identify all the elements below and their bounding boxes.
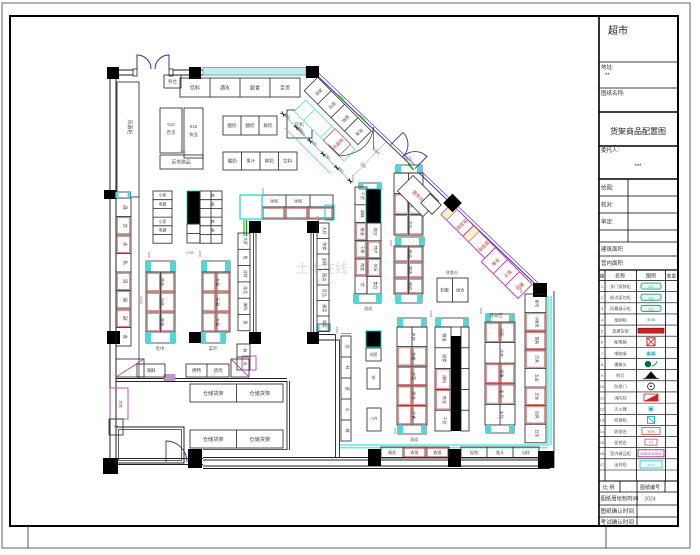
svg-text:超市: 超市 bbox=[608, 24, 628, 37]
svg-text:风幕展示柜: 风幕展示柜 bbox=[610, 305, 631, 312]
svg-text:名称: 名称 bbox=[615, 273, 625, 280]
svg-text:考试确认时间: 考试确认时间 bbox=[601, 518, 635, 526]
svg-text:百货赠品: 百货赠品 bbox=[171, 159, 190, 166]
svg-text:副食: 副食 bbox=[250, 84, 260, 91]
svg-text:百货: 百货 bbox=[167, 129, 176, 136]
svg-text:审定:: 审定: bbox=[601, 218, 614, 226]
svg-text:毛巾: 毛巾 bbox=[156, 345, 165, 352]
svg-text:图纸确认时间: 图纸确认时间 bbox=[601, 507, 635, 515]
svg-text:YY: YY bbox=[649, 441, 654, 445]
svg-text:▣: ▣ bbox=[648, 407, 654, 413]
svg-text:大虾: 大虾 bbox=[243, 237, 249, 245]
svg-text:厨具: 厨具 bbox=[535, 337, 540, 345]
svg-text:仓储货架: 仓储货架 bbox=[249, 435, 270, 443]
svg-text:2060: 2060 bbox=[316, 216, 320, 223]
svg-text:出样: 出样 bbox=[522, 449, 530, 455]
svg-text:冷冻: 冷冻 bbox=[498, 349, 505, 357]
svg-text:酸奶: 酸奶 bbox=[228, 122, 237, 129]
svg-text:糕点面包柜: 糕点面包柜 bbox=[610, 294, 631, 301]
svg-text:促销: 促销 bbox=[470, 449, 478, 455]
svg-text:称台: 称台 bbox=[168, 78, 177, 85]
svg-text:2780: 2780 bbox=[186, 251, 194, 255]
svg-text:称重台: 称重台 bbox=[446, 269, 458, 275]
svg-text:卫生: 卫生 bbox=[408, 221, 414, 229]
svg-text:调料: 调料 bbox=[442, 375, 448, 383]
svg-text:仓储货架: 仓储货架 bbox=[203, 435, 224, 443]
svg-text:烟: 烟 bbox=[122, 298, 129, 303]
svg-text:图纸周绘制时间: 图纸周绘制时间 bbox=[601, 495, 639, 503]
svg-text:12: 12 bbox=[600, 406, 605, 411]
svg-text:通道: 通道 bbox=[364, 305, 372, 311]
svg-text:冰柜: 冰柜 bbox=[270, 197, 278, 204]
svg-text:小家电: 小家电 bbox=[535, 316, 540, 328]
svg-text:2060: 2060 bbox=[519, 287, 523, 294]
svg-text:菜叶: 菜叶 bbox=[209, 345, 218, 352]
svg-text:收银: 收银 bbox=[411, 449, 419, 455]
svg-text:多门保鲜柜: 多门保鲜柜 bbox=[610, 283, 631, 290]
svg-text:比 例: 比 例 bbox=[603, 484, 614, 491]
svg-text:910: 910 bbox=[167, 122, 175, 127]
svg-text:小家: 小家 bbox=[159, 193, 167, 198]
svg-text:鲜: 鲜 bbox=[243, 349, 249, 353]
svg-text:co188.com: co188.com bbox=[309, 280, 336, 286]
svg-text:冷库: 冷库 bbox=[118, 400, 124, 408]
svg-text:射灯: 射灯 bbox=[616, 372, 625, 379]
svg-text:果汁: 果汁 bbox=[246, 158, 255, 165]
svg-text:熟食: 熟食 bbox=[322, 242, 328, 250]
svg-text:***: *** bbox=[634, 164, 642, 170]
svg-text:楼: 楼 bbox=[210, 220, 215, 224]
svg-text:鱼: 鱼 bbox=[243, 321, 249, 325]
svg-text:电器: 电器 bbox=[159, 227, 167, 232]
svg-text:组合: 组合 bbox=[456, 286, 465, 293]
svg-text:肉: 肉 bbox=[243, 362, 249, 366]
svg-text:小家: 小家 bbox=[159, 219, 167, 224]
svg-text:出样柜: 出样柜 bbox=[614, 461, 627, 468]
svg-text:海鲜: 海鲜 bbox=[147, 367, 156, 374]
svg-text:2060: 2060 bbox=[389, 240, 393, 247]
svg-text:2060: 2060 bbox=[351, 175, 355, 182]
svg-text:◻◻: ◻◻ bbox=[648, 307, 654, 311]
svg-text:酒水: 酒水 bbox=[220, 84, 230, 91]
svg-text:仓储货架: 仓储货架 bbox=[249, 389, 270, 397]
svg-text:小件: 小件 bbox=[370, 416, 378, 421]
svg-text:海鲜: 海鲜 bbox=[243, 302, 249, 310]
svg-text:烟酒柜: 烟酒柜 bbox=[614, 316, 627, 323]
svg-text:熟食: 熟食 bbox=[410, 352, 417, 361]
svg-text:通道: 通道 bbox=[410, 436, 418, 442]
svg-text:酸奶: 酸奶 bbox=[246, 122, 255, 129]
svg-text:日化: 日化 bbox=[159, 298, 166, 307]
svg-text:凉菜: 凉菜 bbox=[322, 320, 328, 328]
svg-text:洗化: 洗化 bbox=[159, 278, 166, 287]
svg-text:干果: 干果 bbox=[360, 245, 366, 253]
svg-text:百货: 百货 bbox=[280, 84, 290, 91]
svg-text:名吃: 名吃 bbox=[410, 333, 417, 342]
svg-text:≋≋: ≋≋ bbox=[647, 318, 655, 324]
svg-text:货: 货 bbox=[360, 283, 366, 287]
svg-text:冰柜: 冰柜 bbox=[294, 197, 302, 204]
svg-text:◻◻: ◻◻ bbox=[648, 285, 654, 289]
svg-text:校对:: 校对: bbox=[601, 201, 614, 209]
svg-text:17: 17 bbox=[600, 462, 605, 467]
svg-text:调味: 调味 bbox=[360, 210, 366, 218]
svg-text:地址:: 地址: bbox=[601, 63, 614, 71]
svg-text:酸奶: 酸奶 bbox=[228, 158, 237, 165]
svg-text:**: ** bbox=[605, 73, 610, 79]
svg-text:副食: 副食 bbox=[442, 354, 448, 362]
svg-text:室内精品柜: 室内精品柜 bbox=[610, 450, 631, 457]
svg-text:梯: 梯 bbox=[210, 202, 215, 206]
svg-text:食品: 食品 bbox=[189, 131, 198, 138]
svg-text:电器: 电器 bbox=[159, 201, 167, 206]
svg-text:饮料: 饮料 bbox=[283, 158, 292, 165]
svg-text:饮: 饮 bbox=[122, 224, 129, 229]
svg-text:2060: 2060 bbox=[393, 428, 397, 435]
svg-text:纸品: 纸品 bbox=[407, 250, 414, 258]
svg-text:粮: 粮 bbox=[345, 429, 351, 433]
svg-text:洗护: 洗护 bbox=[407, 282, 414, 290]
svg-text:文具: 文具 bbox=[214, 278, 221, 287]
svg-text:玩具: 玩具 bbox=[535, 411, 540, 419]
svg-text:营内面积: 营内面积 bbox=[601, 259, 624, 267]
svg-text:10: 10 bbox=[600, 384, 605, 389]
svg-text:烧鸡: 烧鸡 bbox=[214, 367, 223, 374]
svg-text:图纸编号: 图纸编号 bbox=[640, 484, 660, 491]
svg-text:15: 15 bbox=[600, 440, 605, 445]
svg-text:摄像头: 摄像头 bbox=[614, 361, 627, 368]
svg-text:915: 915 bbox=[190, 124, 198, 129]
svg-text:冷鲜: 冷鲜 bbox=[243, 270, 249, 278]
svg-text:促销台: 促销台 bbox=[614, 439, 627, 446]
svg-text:鲜奶: 鲜奶 bbox=[265, 158, 274, 165]
svg-text:消防栓: 消防栓 bbox=[614, 394, 627, 401]
svg-text:普通货架: 普通货架 bbox=[612, 327, 629, 334]
svg-text:干货: 干货 bbox=[360, 192, 366, 200]
svg-text:3180: 3180 bbox=[139, 296, 143, 304]
svg-text:水饮: 水饮 bbox=[498, 411, 505, 420]
svg-text:粮油: 粮油 bbox=[442, 333, 448, 341]
svg-text:日杂: 日杂 bbox=[535, 430, 540, 438]
svg-text:收银台: 收银台 bbox=[614, 428, 627, 435]
svg-text:水: 水 bbox=[123, 242, 129, 247]
svg-text:蔬果区: 蔬果区 bbox=[489, 312, 503, 319]
svg-text:2060: 2060 bbox=[429, 311, 433, 318]
svg-text:2060: 2060 bbox=[479, 308, 483, 315]
svg-text:~WW~: ~WW~ bbox=[646, 463, 657, 467]
svg-text:饮料: 饮料 bbox=[190, 84, 200, 91]
svg-text:粮油: 粮油 bbox=[360, 228, 366, 236]
svg-text:服务: 服务 bbox=[388, 449, 396, 455]
svg-text:图纸名称:: 图纸名称: bbox=[601, 89, 625, 97]
svg-text:洗涤: 洗涤 bbox=[159, 318, 166, 326]
svg-text:烤鸭: 烤鸭 bbox=[192, 367, 201, 374]
svg-text:委托人:: 委托人: bbox=[601, 146, 620, 154]
svg-text:南北: 南北 bbox=[442, 396, 448, 404]
svg-text:收银: 收银 bbox=[434, 449, 442, 455]
svg-text:14: 14 bbox=[600, 429, 605, 434]
svg-text:料: 料 bbox=[345, 366, 351, 370]
svg-text:精品: 精品 bbox=[404, 155, 412, 161]
svg-text:楼: 楼 bbox=[210, 193, 215, 197]
svg-text:鱼: 鱼 bbox=[243, 255, 249, 259]
svg-text:排: 排 bbox=[372, 374, 376, 380]
svg-text:凉菜: 凉菜 bbox=[410, 372, 417, 381]
svg-text:建筑面积: 建筑面积 bbox=[601, 245, 624, 253]
svg-text:XXX: XXX bbox=[647, 430, 655, 434]
svg-text:灯具: 灯具 bbox=[535, 355, 540, 363]
svg-text:南北: 南北 bbox=[360, 263, 366, 271]
svg-text:梯: 梯 bbox=[210, 228, 215, 232]
svg-text:豆品: 豆品 bbox=[322, 289, 327, 297]
svg-text:土木在线: 土木在线 bbox=[296, 261, 348, 276]
svg-text:堆头: 堆头 bbox=[496, 449, 504, 455]
svg-text:干货: 干货 bbox=[442, 417, 448, 425]
svg-text:速食: 速食 bbox=[498, 369, 505, 378]
svg-text:酱菜: 酱菜 bbox=[322, 304, 328, 312]
svg-text:910: 910 bbox=[180, 150, 186, 154]
svg-text:清洁: 清洁 bbox=[407, 266, 414, 274]
svg-text:◻◻: ◻◻ bbox=[648, 296, 654, 300]
svg-text:主食: 主食 bbox=[410, 411, 417, 420]
svg-text:防损门: 防损门 bbox=[614, 383, 627, 390]
svg-text:家电: 家电 bbox=[535, 300, 540, 308]
svg-text:电: 电 bbox=[114, 423, 118, 429]
svg-text:文体: 文体 bbox=[535, 393, 540, 401]
svg-text:配电箱: 配电箱 bbox=[614, 339, 627, 346]
svg-text:▦▦: ▦▦ bbox=[646, 351, 656, 357]
svg-text:2060: 2060 bbox=[261, 188, 265, 195]
svg-text:仓储货架: 仓储货架 bbox=[203, 389, 224, 397]
svg-text:休闲: 休闲 bbox=[373, 264, 379, 272]
svg-text:2060: 2060 bbox=[198, 251, 202, 258]
svg-text:鲜奶: 鲜奶 bbox=[264, 122, 273, 129]
svg-text:副: 副 bbox=[122, 316, 129, 321]
svg-text:电脑桌: 电脑桌 bbox=[614, 350, 627, 357]
svg-text:冻品: 冻品 bbox=[243, 286, 249, 294]
svg-text:乳: 乳 bbox=[123, 261, 129, 266]
svg-text:风幕柜: 风幕柜 bbox=[126, 119, 133, 134]
svg-text:食: 食 bbox=[122, 335, 129, 340]
svg-text:编: 编 bbox=[600, 273, 605, 280]
svg-text:13: 13 bbox=[600, 418, 605, 423]
svg-text:酒: 酒 bbox=[345, 387, 351, 391]
svg-text:特产: 特产 bbox=[373, 246, 379, 254]
svg-text:绘图:: 绘图: bbox=[601, 184, 614, 192]
svg-text:食品: 食品 bbox=[373, 281, 379, 289]
svg-text:16: 16 bbox=[600, 451, 605, 456]
svg-text:货架商品配置图: 货架商品配置图 bbox=[610, 126, 666, 136]
svg-text:2024: 2024 bbox=[644, 497, 655, 503]
svg-text:酒: 酒 bbox=[122, 205, 129, 210]
svg-text:2060: 2060 bbox=[335, 327, 339, 334]
svg-text:水: 水 bbox=[345, 408, 351, 412]
svg-text:饮: 饮 bbox=[345, 345, 351, 349]
svg-text:大虾: 大虾 bbox=[322, 227, 328, 235]
svg-text:数量: 数量 bbox=[667, 273, 677, 280]
svg-text:乳品: 乳品 bbox=[498, 390, 505, 398]
svg-text:地磅: 地磅 bbox=[370, 352, 378, 357]
svg-text:地方: 地方 bbox=[373, 228, 379, 236]
svg-text:图例: 图例 bbox=[646, 273, 656, 280]
svg-text:2060: 2060 bbox=[147, 252, 151, 259]
svg-text:文具: 文具 bbox=[214, 318, 221, 327]
svg-text:WWW WWW: WWW WWW bbox=[640, 452, 662, 456]
svg-text:收银机: 收银机 bbox=[614, 417, 627, 424]
svg-text:制重: 制重 bbox=[441, 286, 449, 293]
svg-text:五金: 五金 bbox=[535, 374, 540, 382]
